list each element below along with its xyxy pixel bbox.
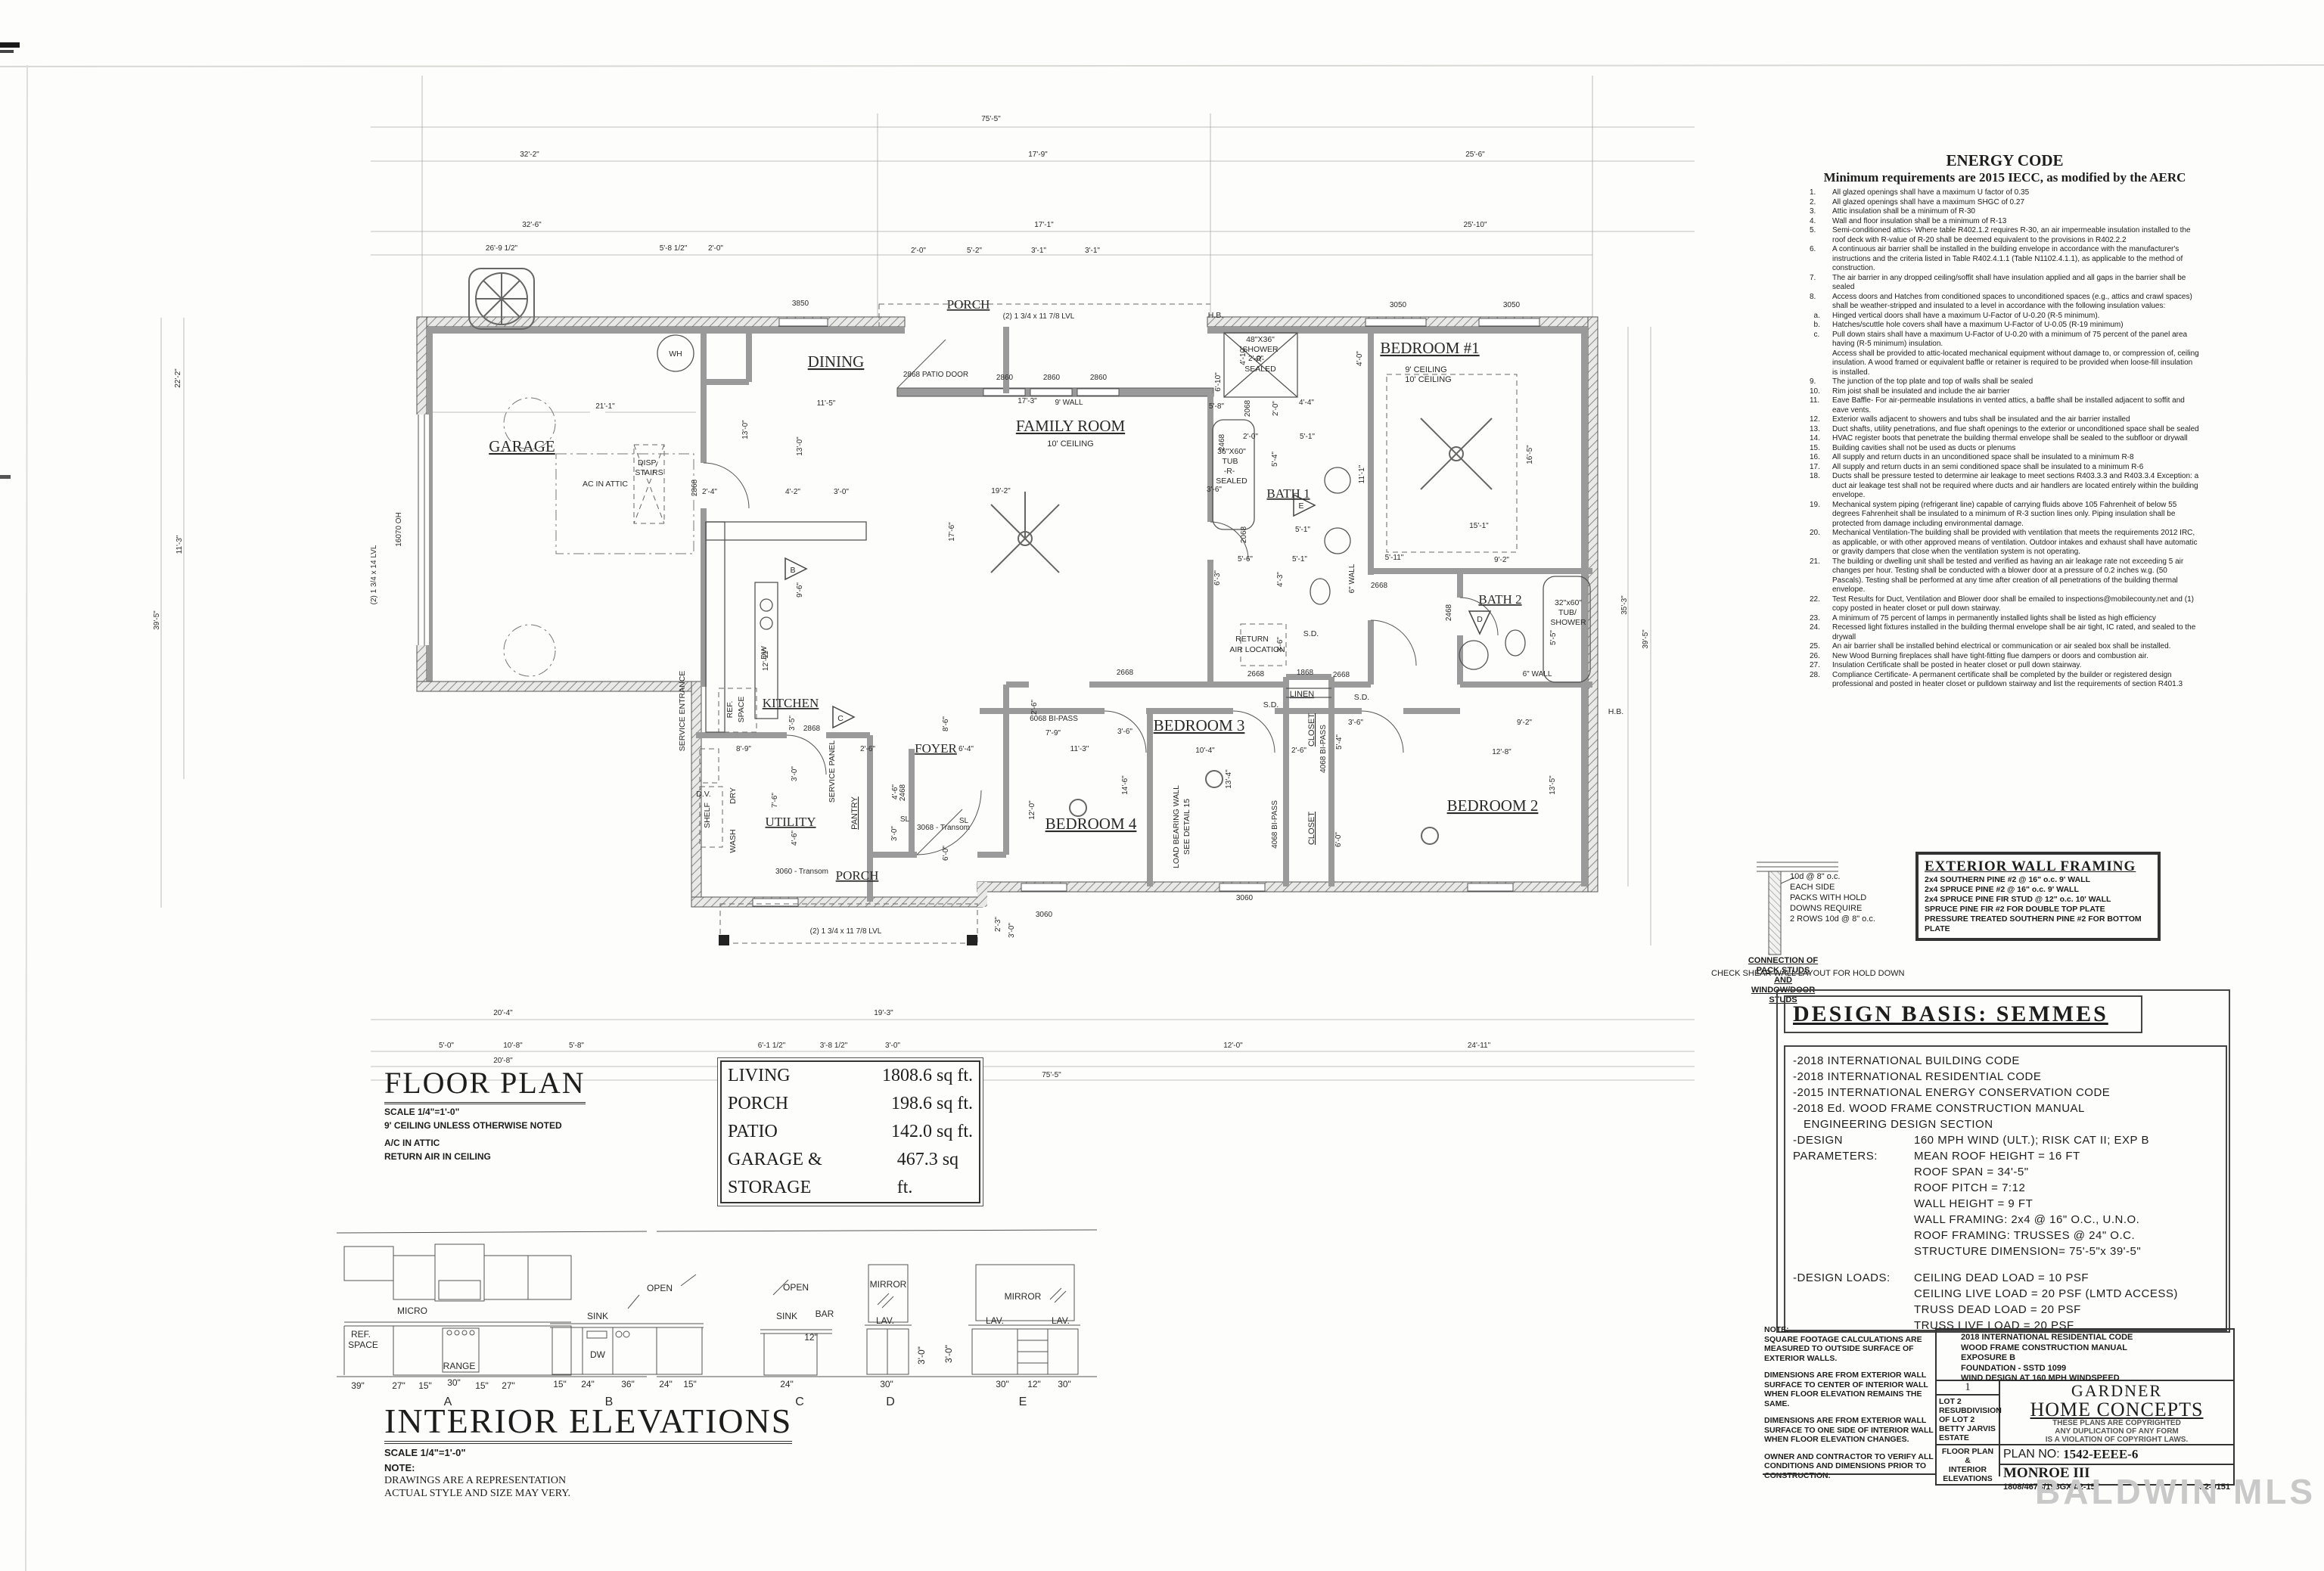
dim-text: 11'-3": [1070, 745, 1089, 753]
dim-text: 4'-6": [791, 831, 799, 846]
lot-line: ESTATE: [1939, 1433, 1996, 1442]
pack-studs-note-line: EACH SIDE: [1790, 882, 1903, 893]
framing-line: SPRUCE PINE FIR #2 FOR DOUBLE TOP PLATE: [1925, 905, 2152, 914]
pack-studs-caption-line: CONNECTION OF: [1726, 956, 1840, 966]
dim-text: 16'-5": [1526, 445, 1534, 464]
dim-text: 6'-1 1/2": [758, 1042, 786, 1050]
energy-code-item: 6. A continuous air barrier shall be ins…: [1810, 245, 2200, 274]
exterior-wall-framing-block: EXTERIOR WALL FRAMING 2x4 SOUTHERN PINE …: [1915, 852, 2161, 941]
dim-text: 5'-8": [1209, 402, 1224, 411]
framing-list: 2x4 SOUTHERN PINE #2 @ 16" o.c. 9' WALL2…: [1925, 875, 2152, 934]
dim-text: 20'-4": [493, 1009, 513, 1017]
dim-text: 5'-6": [1238, 555, 1253, 564]
elev-d-width: 30": [880, 1379, 893, 1389]
opening-tag: 2068: [1240, 526, 1248, 543]
title-block-notes: NOTE: SQUARE FOOTAGE CALCULATIONS ARE ME…: [1764, 1325, 1937, 1488]
load-bearing-label-2: SEE DETAIL 15: [1182, 799, 1192, 855]
dim-text: 7'-6": [771, 793, 779, 808]
energy-code-item-number: 26.: [1810, 652, 1832, 662]
lot-line: BETTY JARVIS: [1939, 1424, 1996, 1433]
room-label-bath1: BATH 1: [1266, 486, 1310, 501]
energy-code-item: 13. Duct shafts, utility penetrations, a…: [1810, 425, 2200, 435]
design-basis-params-label: -DESIGN PARAMETERS:: [1793, 1132, 1914, 1259]
dim-text: 35'-3": [1620, 595, 1629, 615]
service-entrance-label: SERVICE ENTRANCE: [678, 671, 687, 752]
interior-elevations-scale: SCALE 1/4"=1'-0": [384, 1447, 1020, 1459]
sd-label-3: S.D.: [1354, 693, 1369, 702]
energy-code-item: 21. The building or dwelling unit shall …: [1810, 557, 2200, 595]
energy-code-item: 19. Mechanical system piping (refrigeran…: [1810, 501, 2200, 529]
disp-label-1: DISP.: [638, 458, 657, 467]
dim-text: 4'-4": [1299, 399, 1314, 407]
energy-code-item-number: 21.: [1810, 557, 1832, 595]
dim-text: 3'-0": [890, 826, 899, 841]
opening-tag: 6" WALL: [1523, 670, 1552, 678]
callout-b: B: [790, 566, 795, 575]
floor-plan-title: FLOOR PLAN: [384, 1065, 586, 1104]
dim-text: 3'-5": [788, 716, 797, 731]
sheet-title-line: ELEVATIONS: [1939, 1474, 1996, 1483]
pack-studs-note-line: DOWNS REQUIRE: [1790, 903, 1903, 914]
design-basis-param-line: ROOF SPAN = 34'-5": [1914, 1164, 2226, 1180]
room-label-foyer: FOYER: [915, 741, 957, 756]
floor-plan-note-return: RETURN AIR IN CEILING: [384, 1151, 634, 1163]
design-basis-load-line: CEILING DEAD LOAD = 10 PSF: [1914, 1270, 2226, 1286]
energy-code-item-text: Rim joist shall be insulated and include…: [1832, 387, 2200, 397]
room-label-linen: LINEN: [1290, 690, 1314, 699]
energy-code-item-number: 25.: [1810, 642, 1832, 652]
design-basis-code-line: -2018 Ed. WOOD FRAME CONSTRUCTION MANUAL: [1793, 1101, 2226, 1116]
energy-code-item-text: Exterior walls adjacent to showers and t…: [1832, 415, 2200, 425]
energy-code-item-number: 16.: [1810, 453, 1832, 463]
dim-text: 2'-3": [994, 917, 1002, 932]
energy-code-item-number: 18.: [1810, 472, 1832, 501]
callout-e: E: [1298, 501, 1303, 511]
wh-label: WH: [669, 349, 682, 359]
energy-code-item-text: Ducts shall be pressure tested to determ…: [1832, 472, 2200, 501]
title-block-left-column: 1 LOT 2RESUBDIVISIONOF LOT 2BETTY JARVIS…: [1937, 1381, 2000, 1476]
dim-text: 75'-5": [981, 115, 1001, 123]
elev-e-dim: 30": [996, 1379, 1009, 1389]
energy-code-item: 8. Access doors and Hatches from conditi…: [1810, 293, 2200, 312]
elevation-a: REF. SPACE MICRO RANGE 39" 27" 15" 30" 1…: [344, 1244, 571, 1408]
framing-line: 2x4 SPRUCE PINE FIR STUD @ 12" o.c. 10' …: [1925, 895, 2152, 905]
opening-tag: 2860: [996, 374, 1014, 382]
elev-b-open: OPEN: [647, 1283, 673, 1293]
dim-text: 6'-0": [942, 846, 950, 861]
dim-text: 3'-1": [1031, 247, 1046, 255]
energy-code-item-number: [1810, 349, 1832, 378]
area-value: 467.3 sq ft.: [897, 1146, 973, 1202]
area-table-row: GARAGE & STORAGE 467.3 sq ft.: [722, 1146, 979, 1202]
dim-text: 9'-2": [1517, 719, 1532, 727]
pack-studs-note-line: 2 ROWS 10d @ 8" o.c.: [1790, 914, 1903, 924]
energy-code-block: ENERGY CODE Minimum requirements are 201…: [1810, 151, 2200, 690]
dashed-elements: [504, 304, 1517, 945]
dim-text: 3'-6": [1348, 719, 1363, 727]
energy-code-item-text: HVAC register boots that penetrate the b…: [1832, 434, 2200, 444]
energy-code-item-text: A continuous air barrier shall be instal…: [1832, 245, 2200, 274]
tubshower-label-1: 32"x60": [1555, 598, 1582, 607]
energy-code-item: 24. Recessed light fixtures installed in…: [1810, 623, 2200, 642]
dim-text: 26'-9 1/2": [486, 244, 518, 253]
dim-text: 17'-3": [1018, 397, 1037, 405]
energy-code-item-number: 1.: [1810, 188, 1832, 198]
elev-b-dim: 24": [659, 1379, 673, 1389]
opening-tag: 3850: [792, 300, 809, 308]
elev-d-height: 3'-0": [916, 1346, 927, 1365]
design-basis-title-box: DESIGN BASIS: SEMMES: [1784, 995, 2142, 1033]
elev-a-dim: 15": [418, 1380, 432, 1391]
energy-code-item-number: 12.: [1810, 415, 1832, 425]
design-basis-code-line: ENGINEERING DESIGN SECTION: [1793, 1116, 2226, 1132]
energy-code-item: 15. Building cavities shall not be used …: [1810, 444, 2200, 454]
sheet-title-line: &: [1939, 1456, 1996, 1465]
shelf-label: SHELF: [703, 803, 712, 828]
dim-text: 75'-5": [1042, 1071, 1061, 1079]
energy-code-item-text: Building cavities shall not be used as d…: [1832, 444, 2200, 454]
design-basis-codes: -2018 INTERNATIONAL BUILDING CODE-2018 I…: [1793, 1053, 2226, 1132]
elev-a-dim: 27": [502, 1380, 515, 1391]
dim-text: 2'-6": [1030, 700, 1039, 715]
dim-text: 2'-0": [1272, 401, 1280, 416]
energy-code-item-text: Hinged vertical doors shall have a maxim…: [1832, 312, 2200, 321]
dim-text: 14'-6": [1121, 775, 1129, 795]
energy-code-item-number: b.: [1810, 321, 1832, 331]
design-basis-param-line: ROOF PITCH = 7:12: [1914, 1180, 2226, 1196]
energy-code-item-text: A minimum of 75 percent of lamps in perm…: [1832, 614, 2200, 624]
dim-text: 5'-2": [967, 247, 982, 255]
interior-elevation-drawings: REF. SPACE MICRO RANGE 39" 27" 15" 30" 1…: [337, 1230, 1097, 1408]
interior-elevations-note-1: DRAWINGS ARE A REPRESENTATION: [384, 1474, 1020, 1487]
energy-code-item: Access shall be provided to attic-locate…: [1810, 349, 2200, 378]
dim-text: 5'-4": [1335, 734, 1344, 750]
dim-text: 4'-2": [785, 488, 800, 496]
callout-c: C: [837, 714, 844, 723]
hb-label-1: H.B.: [1208, 311, 1223, 320]
shower-label-1: 48"X36": [1246, 335, 1275, 344]
energy-code-item-text: Mechanical system piping (refrigerant li…: [1832, 501, 2200, 529]
room-label-bed1: BEDROOM #1: [1380, 339, 1479, 357]
energy-code-item-number: 15.: [1810, 444, 1832, 454]
dim-text: 17'-9": [1028, 151, 1048, 159]
opening-tag: 3060 - Transom: [775, 868, 828, 876]
area-value: 142.0 sq ft.: [891, 1118, 973, 1146]
dim-text: 3'-0": [834, 488, 849, 496]
energy-code-item-text: The air barrier in any dropped ceiling/s…: [1832, 274, 2200, 293]
elev-e-label: E: [1019, 1396, 1027, 1408]
elev-e-dim: 30": [1058, 1379, 1071, 1389]
dim-text: 15'-1": [1469, 522, 1489, 530]
dim-text: 17'-1": [1034, 221, 1054, 229]
callout-d: D: [1477, 615, 1483, 624]
ref-label-1: REF.: [725, 701, 735, 719]
dim-text: 12'-8": [1492, 748, 1512, 756]
room-label-family: FAMILY ROOM: [1016, 417, 1126, 435]
energy-code-item: 4. Wall and floor insulation shall be a …: [1810, 217, 2200, 227]
energy-code-item: 17. All supply and return ducts in an se…: [1810, 463, 2200, 473]
floor-plan-heading-block: FLOOR PLAN SCALE 1/4"=1'-0" 9' CEILING U…: [384, 1065, 634, 1163]
sheet-title: FLOOR PLAN&INTERIORELEVATIONS: [1937, 1445, 1999, 1485]
energy-code-item: 26. New Wood Burning fireplaces shall ha…: [1810, 652, 2200, 662]
dim-text: 2'-0": [911, 247, 926, 255]
dim-text: 13'-0": [796, 436, 804, 456]
opening-tag: 2468: [899, 784, 907, 801]
opening-tag: 2068: [1244, 399, 1252, 417]
pack-studs-note-line: 10d @ 8" o.c.: [1790, 871, 1903, 882]
opening-tag: 3060: [1236, 894, 1254, 902]
plan-number-label: PLAN NO:: [2003, 1448, 2060, 1461]
room-label-bath2: BATH 2: [1478, 592, 1521, 607]
area-name: PORCH: [728, 1090, 788, 1118]
area-table-row: LIVING 1808.6 sq ft.: [722, 1062, 979, 1090]
energy-code-item-number: a.: [1810, 312, 1832, 321]
title-block-code-line: FOUNDATION - SSTD 1099: [1961, 1364, 2230, 1374]
dim-text: 3'-6": [1117, 728, 1132, 736]
energy-code-item-number: 9.: [1810, 377, 1832, 387]
dim-text: 3'-0": [1008, 923, 1016, 938]
energy-code-item: 25. An air barrier shall be installed be…: [1810, 642, 2200, 652]
title-block: 2018 INTERNATIONAL RESIDENTIAL CODEWOOD …: [1935, 1328, 2235, 1486]
dim-text: 39'-5": [153, 610, 161, 630]
dim-text: 5'-8 1/2": [660, 244, 688, 253]
dim-text: 24'-11": [1468, 1042, 1491, 1050]
dim-text: 5'-4": [1271, 452, 1279, 467]
dim-text: 3'-6": [1207, 486, 1222, 494]
dim-text: 6'-4": [958, 745, 974, 753]
opening-tag: 6068 BI-PASS: [1030, 715, 1078, 723]
dim-text: 25'-6": [1465, 151, 1485, 159]
dim-text: 20'-8": [493, 1057, 513, 1065]
dim-text: 5'-5": [1549, 630, 1558, 645]
disp-label-2: STAIRS: [635, 468, 663, 477]
room-labels: GARAGE DINING FAMILY ROOM 10' CEILING PO…: [489, 297, 1538, 883]
energy-code-item-text: Access doors and Hatches from conditione…: [1832, 293, 2200, 312]
energy-code-item-number: 27.: [1810, 661, 1832, 671]
lot-description: LOT 2RESUBDIVISIONOF LOT 2BETTY JARVISES…: [1937, 1396, 1999, 1445]
copyright-line: ANY DUPLICATION OF ANY FORM: [2000, 1427, 2233, 1436]
opening-tag: 2668: [1371, 582, 1388, 590]
dim-text: 39'-5": [1642, 629, 1650, 649]
room-label-closet1: CLOSET: [1307, 713, 1316, 747]
load-bearing-label-1: LOAD BEARING WALL: [1172, 785, 1181, 868]
dim-text: 17'-6": [948, 522, 956, 542]
room-sub-bed1-a: 9' CEILING: [1405, 365, 1446, 374]
opening-tag: 3050: [1503, 301, 1521, 309]
energy-code-item: 2. All glazed openings shall have a maxi…: [1810, 198, 2200, 208]
area-name: GARAGE & STORAGE: [728, 1146, 897, 1202]
dim-text: 2'-6": [860, 745, 875, 753]
elev-c-sink: SINK: [776, 1311, 797, 1321]
room-label-dining: DINING: [808, 352, 865, 371]
dim-text: 10'-4": [1195, 747, 1215, 755]
design-basis-code-line: -2018 INTERNATIONAL BUILDING CODE: [1793, 1053, 2226, 1069]
energy-code-item: 11. Eave Baffle- For air-permeable insul…: [1810, 396, 2200, 415]
opening-tag: 3050: [1390, 301, 1407, 309]
dim-text: 5'-1": [1295, 526, 1310, 534]
design-basis-title: DESIGN BASIS: SEMMES: [1793, 1001, 2108, 1026]
room-label-garage: GARAGE: [489, 437, 555, 455]
dv-label: D.V.: [696, 790, 710, 799]
dim-text: 10'-8": [503, 1042, 523, 1050]
opening-tag: 16070 OH: [395, 512, 403, 547]
energy-code-item-number: 17.: [1810, 463, 1832, 473]
dim-text: 2'-0": [1243, 433, 1258, 441]
opening-tag: 6" WALL: [1348, 564, 1356, 593]
elev-b-dim: 15": [683, 1379, 697, 1389]
energy-code-item: 20. Mechanical Ventilation-The building …: [1810, 529, 2200, 557]
dim-text: 22'-2": [174, 368, 182, 388]
title-block-code-line: EXPOSURE B: [1961, 1353, 2230, 1364]
lot-line: LOT 2: [1939, 1397, 1996, 1406]
dim-text: 32'-2": [520, 151, 539, 159]
opening-tag: SL: [959, 817, 969, 825]
dim-text: 6'-3": [1213, 570, 1222, 585]
title-block-code-line: 2018 INTERNATIONAL RESIDENTIAL CODE: [1961, 1333, 2230, 1343]
tub-label-3: -R-: [1224, 467, 1235, 476]
room-label-bed3: BEDROOM 3: [1154, 716, 1245, 734]
dim-text: 2'-6": [1291, 747, 1306, 755]
title-block-note-para: NOTE: SQUARE FOOTAGE CALCULATIONS ARE ME…: [1764, 1325, 1937, 1363]
opening-tag: 3060: [1036, 911, 1053, 919]
energy-code-item-text: Access shall be provided to attic-locate…: [1832, 349, 2200, 378]
energy-code-item: b. Hatches/scuttle hole covers shall hav…: [1810, 321, 2200, 331]
opening-tag: 2868 PATIO DOOR: [903, 371, 968, 379]
dim-text: 3'-8 1/2": [820, 1042, 848, 1050]
dim-text: 9'-6": [796, 582, 804, 598]
ceiling-fan-symbols: [469, 269, 1492, 844]
elev-c-dim12: 12": [804, 1332, 818, 1343]
elev-b-dim: 24": [581, 1379, 595, 1389]
dim-text: 3'-0": [791, 766, 799, 781]
dim-text: 6'-10": [1214, 372, 1223, 392]
interior-elevations-title: INTERIOR ELEVATIONS: [384, 1401, 792, 1444]
energy-code-item-number: 6.: [1810, 245, 1832, 274]
energy-code-item: 18. Ducts shall be pressure tested to de…: [1810, 472, 2200, 501]
energy-code-item-text: Insulation Certificate shall be posted i…: [1832, 661, 2200, 671]
energy-code-item-number: 28.: [1810, 671, 1832, 690]
plan-number-row: PLAN NO: 1542-EEEE-6: [2000, 1444, 2233, 1464]
energy-code-item-number: 3.: [1810, 207, 1832, 217]
opening-tag: 1868: [1297, 669, 1314, 677]
energy-code-item-text: All glazed openings shall have a maximum…: [1832, 198, 2200, 208]
dim-text: 5'-1": [1292, 555, 1307, 564]
ac-label: AC IN ATTIC: [583, 480, 628, 489]
shower-label-2: SHOWER: [1242, 345, 1279, 354]
opening-tag: 2868: [691, 479, 699, 496]
copyright-notice: THESE PLANS ARE COPYRIGHTEDANY DUPLICATI…: [2000, 1419, 2233, 1444]
pack-studs-note-line: PACKS WITH HOLD: [1790, 893, 1903, 903]
elev-b-dw: DW: [590, 1349, 606, 1360]
energy-code-item-number: 7.: [1810, 274, 1832, 293]
interior-elevations-note-2: ACTUAL STYLE AND SIZE MAY VERY.: [384, 1487, 1020, 1500]
dim-text: 12'-0": [1028, 800, 1036, 820]
energy-code-item: 9. The junction of the top plate and top…: [1810, 377, 2200, 387]
energy-code-item-text: Eave Baffle- For air-permeable insulatio…: [1832, 396, 2200, 415]
opening-tag: 2868: [803, 725, 821, 733]
return-air-label-2: AIR LOCATION: [1229, 645, 1285, 654]
opening-tag: 2860: [1043, 374, 1061, 382]
dim-text: 12'-0": [1223, 1042, 1243, 1050]
tub-label-4: SEALED: [1216, 477, 1247, 486]
area-value: 198.6 sq ft.: [891, 1090, 973, 1118]
dim-text: 2'-0": [708, 244, 723, 253]
energy-code-item: 23. A minimum of 75 percent of lamps in …: [1810, 614, 2200, 624]
elev-b-dim: 15": [553, 1379, 567, 1389]
elev-b-sink: SINK: [587, 1311, 608, 1321]
room-label-porch-top: PORCH: [947, 297, 990, 312]
opening-tag: 9' WALL: [1055, 399, 1083, 407]
opening-tag: 2860: [1090, 374, 1108, 382]
opening-tag: 2668: [1333, 671, 1350, 679]
tub-label-1: 36"X60": [1217, 447, 1246, 456]
dim-text: 5'-1": [1300, 433, 1315, 441]
energy-code-item-number: 14.: [1810, 434, 1832, 444]
energy-code-item-number: 20.: [1810, 529, 1832, 557]
sheet-number: 1: [1937, 1381, 1999, 1396]
dim-text: 13'-4": [1225, 769, 1233, 789]
elev-c-open: OPEN: [783, 1282, 809, 1293]
design-basis-param-line: WALL HEIGHT = 9 FT: [1914, 1196, 2226, 1212]
title-block-note-para: DIMENSIONS ARE FROM EXTERIOR WALL SURFAC…: [1764, 1416, 1937, 1445]
energy-code-subtitle: Minimum requirements are 2015 IECC, as m…: [1810, 170, 2200, 185]
title-block-right-column: GARDNER HOME CONCEPTS THESE PLANS ARE CO…: [2000, 1381, 2233, 1476]
energy-code-item: 1. All glazed openings shall have a maxi…: [1810, 188, 2200, 198]
dim-text: 8'-9": [736, 745, 751, 753]
room-label-bed4: BEDROOM 4: [1045, 815, 1137, 833]
elev-c-dim24: 24": [780, 1379, 794, 1389]
framing-title: EXTERIOR WALL FRAMING: [1925, 858, 2152, 875]
interior-elevations-heading: INTERIOR ELEVATIONS SCALE 1/4"=1'-0" NOT…: [384, 1401, 1020, 1500]
opening-tag: SL: [900, 815, 910, 824]
elevation-c: OPEN SINK BAR 12" 24" C: [760, 1280, 834, 1408]
pack-studs-note: 10d @ 8" o.c.EACH SIDEPACKS WITH HOLDDOW…: [1790, 871, 1903, 924]
elev-a-range: RANGE: [443, 1361, 476, 1371]
energy-code-item-number: 8.: [1810, 293, 1832, 312]
dim-text: 2'-4": [702, 488, 717, 496]
design-basis-params: 160 MPH WIND (ULT.); RISK CAT II; EXP BM…: [1914, 1132, 2226, 1259]
energy-code-item: 12. Exterior walls adjacent to showers a…: [1810, 415, 2200, 425]
energy-code-item: 28. Compliance Certificate- A permanent …: [1810, 671, 2200, 690]
elev-a-micro: MICRO: [397, 1306, 427, 1316]
elev-a-dim: 15": [475, 1380, 489, 1391]
design-basis-param-line: ROOF FRAMING: TRUSSES @ 24" O.C.: [1914, 1228, 2226, 1243]
sheet-title-line: FLOOR PLAN: [1939, 1447, 1996, 1456]
company-name-2: HOME CONCEPTS: [2000, 1401, 2233, 1419]
sheet-title-line: INTERIOR: [1939, 1465, 1996, 1474]
dim-text: 3'-1": [1085, 247, 1100, 255]
energy-code-item-text: Mechanical Ventilation-The building shal…: [1832, 529, 2200, 557]
title-block-code-line: WOOD FRAME CONSTRUCTION MANUAL: [1961, 1343, 2230, 1354]
room-label-porch-bottom: PORCH: [836, 868, 879, 883]
dry-label: DRY: [729, 787, 738, 804]
energy-code-list: 1. All glazed openings shall have a maxi…: [1810, 188, 2200, 690]
energy-code-item: 5. Semi-conditioned attics- Where table …: [1810, 226, 2200, 245]
energy-code-item-number: 23.: [1810, 614, 1832, 624]
design-basis-param-line: 160 MPH WIND (ULT.); RISK CAT II; EXP B: [1914, 1132, 2226, 1148]
floor-plan-scale: SCALE 1/4"=1'-0": [384, 1107, 634, 1118]
elev-a-ref2: SPACE: [348, 1340, 378, 1350]
dim-text: 11'-1": [1358, 464, 1366, 483]
energy-code-item-text: The building or dwelling unit shall be t…: [1832, 557, 2200, 595]
lot-line: OF LOT 2: [1939, 1415, 1996, 1424]
opening-tag: 2468: [1445, 604, 1453, 621]
energy-code-item-text: Pull down stairs shall have a maximum U-…: [1832, 331, 2200, 349]
plan-number: 1542-EEEE-6: [2063, 1447, 2138, 1462]
energy-code-item-text: All supply and return ducts in an semi c…: [1832, 463, 2200, 473]
energy-code-item-text: Semi-conditioned attics- Where table R40…: [1832, 226, 2200, 245]
tubshower-label-2: TUB/: [1558, 608, 1577, 617]
